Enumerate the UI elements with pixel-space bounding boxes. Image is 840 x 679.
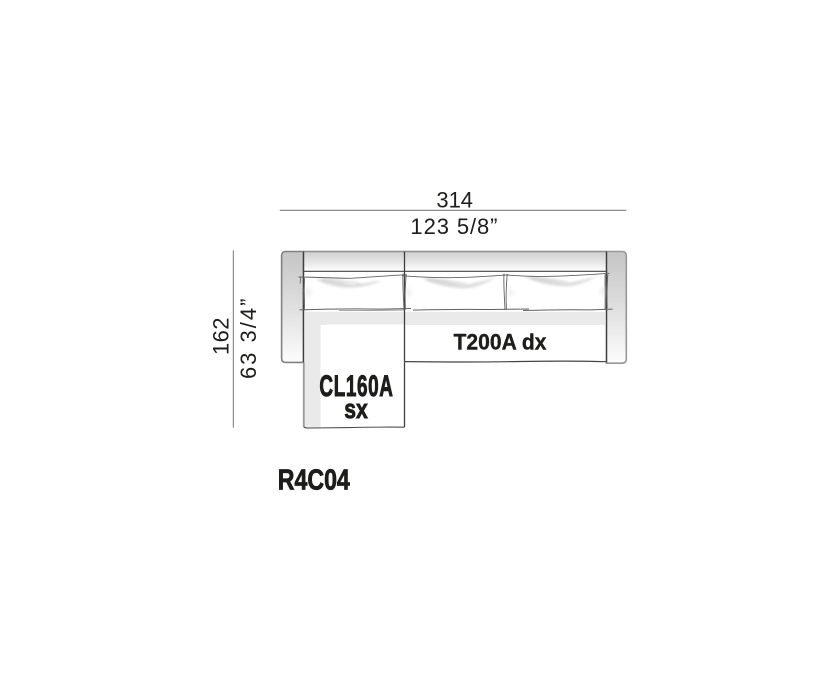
svg-text:T200A dx: T200A dx: [454, 329, 547, 355]
svg-text:123 5/8”: 123 5/8”: [410, 214, 498, 239]
svg-text:314: 314: [436, 187, 473, 212]
svg-text:162: 162: [208, 317, 233, 355]
svg-text:R4C04: R4C04: [278, 463, 350, 496]
svg-text:sx: sx: [344, 395, 368, 425]
svg-text:63 3/4”: 63 3/4”: [236, 297, 261, 380]
